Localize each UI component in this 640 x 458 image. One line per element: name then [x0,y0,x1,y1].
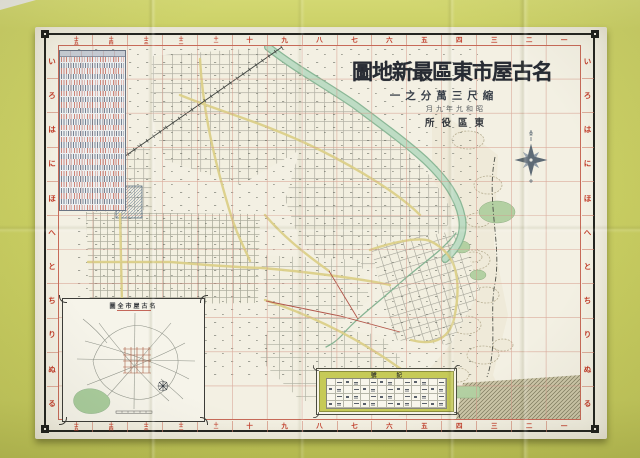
grid-kana-label: に [47,147,58,181]
legend-symbol-cell [344,394,353,401]
index-table-row [61,125,124,130]
grid-number-label: 十三 [127,421,162,432]
legend-symbol-mark [405,403,409,404]
index-table-row [61,91,124,96]
index-table-row [61,165,124,170]
legend-symbol-cell [404,401,413,408]
legend-symbol-cell [336,401,345,408]
index-table-row [61,159,124,164]
grid-kana-label: い [582,45,594,78]
legend-symbol-cell [336,386,345,393]
legend-symbol-cell [412,401,421,408]
grid-number-label: 七 [337,35,372,45]
legend-symbol-cell [361,394,370,401]
legend-symbol-mark [388,389,393,390]
legend-symbol-mark [363,403,366,405]
legend-symbol-mark [422,403,427,404]
index-table-row [61,142,124,147]
legend-symbol-mark [354,403,359,404]
legend-symbol-mark [371,389,375,390]
frame-corner-ornament [41,425,49,433]
grid-kana-label: ち [582,283,594,317]
legend-symbol-mark [354,382,358,383]
grid-number-label: 六 [371,35,406,45]
legend-symbol-cell [395,394,404,401]
inset-scale-bar [116,411,152,413]
legend-symbol-cell [387,379,396,386]
legend-symbol-cell [404,386,413,393]
legend-symbol-cell [378,379,387,386]
legend-symbol-cell [336,379,345,386]
legend-symbol-cell [344,386,353,393]
legend-symbol-cell [395,401,404,408]
legend-symbol-cell [412,394,421,401]
legend-symbol-mark [422,382,426,383]
legend-symbol-mark [405,396,410,397]
grid-kana-label: ぬ [47,352,58,386]
legend-symbol-mark [329,403,332,405]
photo-of-folded-map: 十五十四十三十二十一十九八七六五四三二一 十五十四十三十二十一十九八七六五四三二… [0,0,640,458]
map-publisher-line: 所役區東 [406,115,510,129]
legend-symbol-cell [404,394,413,401]
index-table-row [61,102,124,107]
legend-symbol-cell [378,401,387,408]
grid-number-label: 四 [441,421,476,432]
index-table-row [61,205,124,210]
grid-number-label: 十四 [92,35,127,45]
index-table-row [61,119,124,124]
index-table-row [61,137,124,142]
grid-kana-label: り [582,318,594,352]
grid-kana-label: ろ [582,78,594,112]
legend-symbol-cell [353,386,362,393]
legend-symbol-mark [397,403,400,405]
index-table-row [61,154,124,159]
grid-kana-label: は [47,112,58,146]
legend-symbol-cell [421,386,430,393]
frame-corner-ornament [591,425,599,433]
legend-symbol-cell [327,386,336,393]
grid-number-label: 八 [302,421,337,432]
index-table-row [61,171,124,176]
index-table-row [61,193,124,198]
grid-kana-label: ほ [582,181,594,215]
index-table-row [61,199,124,204]
legend-symbol-cell [344,401,353,408]
grid-number-label: 六 [371,421,406,432]
grid-number-label: 四 [441,35,476,45]
legend-symbol-cell [429,394,438,401]
legend-symbol-mark [380,396,383,398]
legend-symbol-mark [371,396,376,397]
grid-number-label: 十二 [162,35,197,45]
legend-symbol-cell [361,386,370,393]
legend-symbol-mark [439,403,443,404]
grid-kana-label: る [47,386,58,420]
legend-symbol-mark [431,403,434,405]
grid-number-label: 十 [232,421,267,432]
grid-kana-label: と [582,249,594,283]
grid-kana-label: は [582,112,594,146]
legend-symbol-cell [327,401,336,408]
legend-symbol-mark [337,403,341,404]
legend-symbol-cell [387,386,396,393]
frame-corner-ornament [41,30,49,38]
town-name-index-table [59,50,126,211]
index-table-row [61,85,124,90]
legend-symbol-mark [397,388,400,390]
legend-symbol-mark [439,396,444,397]
legend-symbol-cell [387,401,396,408]
index-table-row [61,188,124,193]
grid-number-label: 九 [267,421,302,432]
map-date-line: 月九年九和昭 [400,104,512,114]
grid-number-label: 一 [546,35,581,45]
frame-corner-ornament [591,30,599,38]
legend-symbol-cell [336,394,345,401]
grid-kana-label: ろ [47,78,58,112]
legend-symbol-cell [370,386,379,393]
legend-symbol-cell [404,379,413,386]
legend-symbol-mark [422,389,427,390]
legend-symbol-mark [405,382,410,383]
legend-symbol-cell [429,401,438,408]
legend-symbol-mark [329,388,332,390]
legend-symbol-cell [378,394,387,401]
grid-kana-label: ち [47,283,58,317]
index-table-row [61,108,124,113]
inset-city-map: 圖全市屋古名 [62,298,205,422]
legend-symbol-mark [388,396,392,397]
inset-star-marker [158,381,168,391]
map-scale-note: 一之分萬三尺縮 [366,88,522,103]
legend-symbol-mark [337,396,342,397]
index-table-row [61,68,124,73]
legend-corner-flourish [454,365,460,371]
legend-symbol-cell [395,379,404,386]
map-title: 圖地新最區東市屋古名 [350,56,554,82]
legend-symbol-mark [354,389,359,390]
grid-kana-label: に [582,147,594,181]
grid-column-numbers-top: 十五十四十三十二十一十九八七六五四三二一 [58,35,581,45]
legend-symbol-cell [438,386,447,393]
index-table-row [61,97,124,102]
grid-kana-label: と [47,249,58,283]
index-table-row [61,176,124,181]
legend-symbol-cell [353,394,362,401]
legend-symbol-mark [380,381,383,383]
legend-box: 號記 [316,368,457,415]
grid-number-label: 三 [476,421,511,432]
legend-symbol-mark [431,388,434,390]
grid-kana-label: ぬ [582,352,594,386]
index-table-row [61,114,124,119]
grid-kana-label: へ [582,215,594,249]
legend-symbol-mark [405,389,409,390]
legend-symbol-mark [337,389,341,390]
index-table-row [61,74,124,79]
grid-number-label: 三 [476,35,511,45]
legend-symbol-cell [412,379,421,386]
grid-number-label: 八 [302,35,337,45]
legend-symbol-mark [422,396,426,397]
index-table-row [61,182,124,187]
grid-number-label: 七 [337,421,372,432]
legend-symbol-cell [421,394,430,401]
grid-kana-label: ほ [47,181,58,215]
legend-symbol-cell [327,394,336,401]
grid-number-label: 五 [406,421,441,432]
inset-subtitle-line [117,310,151,311]
grid-number-label: 十三 [127,35,162,45]
grid-kana-label: へ [47,215,58,249]
legend-symbol-mark [439,382,444,383]
grid-number-label: 五 [406,35,441,45]
legend-symbol-mark [388,403,393,404]
legend-symbol-cell [395,386,404,393]
photo-background-sliver [0,0,36,10]
legend-symbol-mark [388,382,392,383]
inset-harbor-green [74,389,110,414]
legend-symbol-cell [421,401,430,408]
legend-symbol-mark [414,396,417,398]
index-table-row [61,148,124,153]
legend-symbol-mark [371,403,375,404]
legend-symbol-cell [353,379,362,386]
grid-kana-label: る [582,386,594,420]
index-table-row [61,131,124,136]
grid-kana-label: い [47,45,58,78]
grid-number-label: 二 [511,421,546,432]
grid-number-label: 十五 [58,35,92,45]
grid-number-label: 十二 [162,421,197,432]
legend-symbol-cell [429,386,438,393]
index-table-row [61,63,124,68]
legend-symbol-cell [438,401,447,408]
legend-symbol-mark [363,388,366,390]
index-table-header [60,51,125,57]
grid-row-kana-right: いろはにほへとちりぬる [582,45,594,420]
legend-symbol-cell [421,379,430,386]
legend-symbol-cell [438,379,447,386]
legend-symbol-cell [378,386,387,393]
grid-number-label: 二 [511,35,546,45]
legend-symbol-mark [346,381,349,383]
legend-symbol-cell [387,394,396,401]
index-table-row [61,57,124,62]
legend-symbol-mark [337,382,342,383]
index-table-row [61,80,124,85]
grid-kana-label: り [47,318,58,352]
grid-number-label: 一 [546,421,581,432]
legend-symbol-mark [414,381,417,383]
legend-symbol-mark [354,396,358,397]
legend-symbol-cell [370,401,379,408]
legend-symbol-cell [370,379,379,386]
grid-column-numbers-bottom: 十五十四十三十二十一十九八七六五四三二一 [58,421,581,432]
legend-symbol-cell [353,401,362,408]
grid-number-label: 十 [232,35,267,45]
grid-number-label: 十一 [197,35,232,45]
inset-title: 圖全市屋古名 [63,301,204,310]
legend-symbol-mark [439,389,443,390]
legend-symbol-cell [412,386,421,393]
legend-symbol-cell [361,401,370,408]
legend-symbol-mark [371,382,376,383]
grid-number-label: 九 [267,35,302,45]
legend-symbol-mark [346,396,349,398]
legend-symbol-cell [370,394,379,401]
inset-corner-flourish [200,295,208,303]
inset-map-content [63,299,204,421]
legend-symbol-cell [438,394,447,401]
grid-row-kana-left: いろはにほへとちりぬる [47,45,58,420]
grid-number-label: 十四 [92,421,127,432]
legend-symbol-cell [344,379,353,386]
legend-symbol-grid [326,378,447,409]
legend-symbol-cell [327,379,336,386]
legend-symbol-cell [361,379,370,386]
legend-symbol-cell [429,379,438,386]
